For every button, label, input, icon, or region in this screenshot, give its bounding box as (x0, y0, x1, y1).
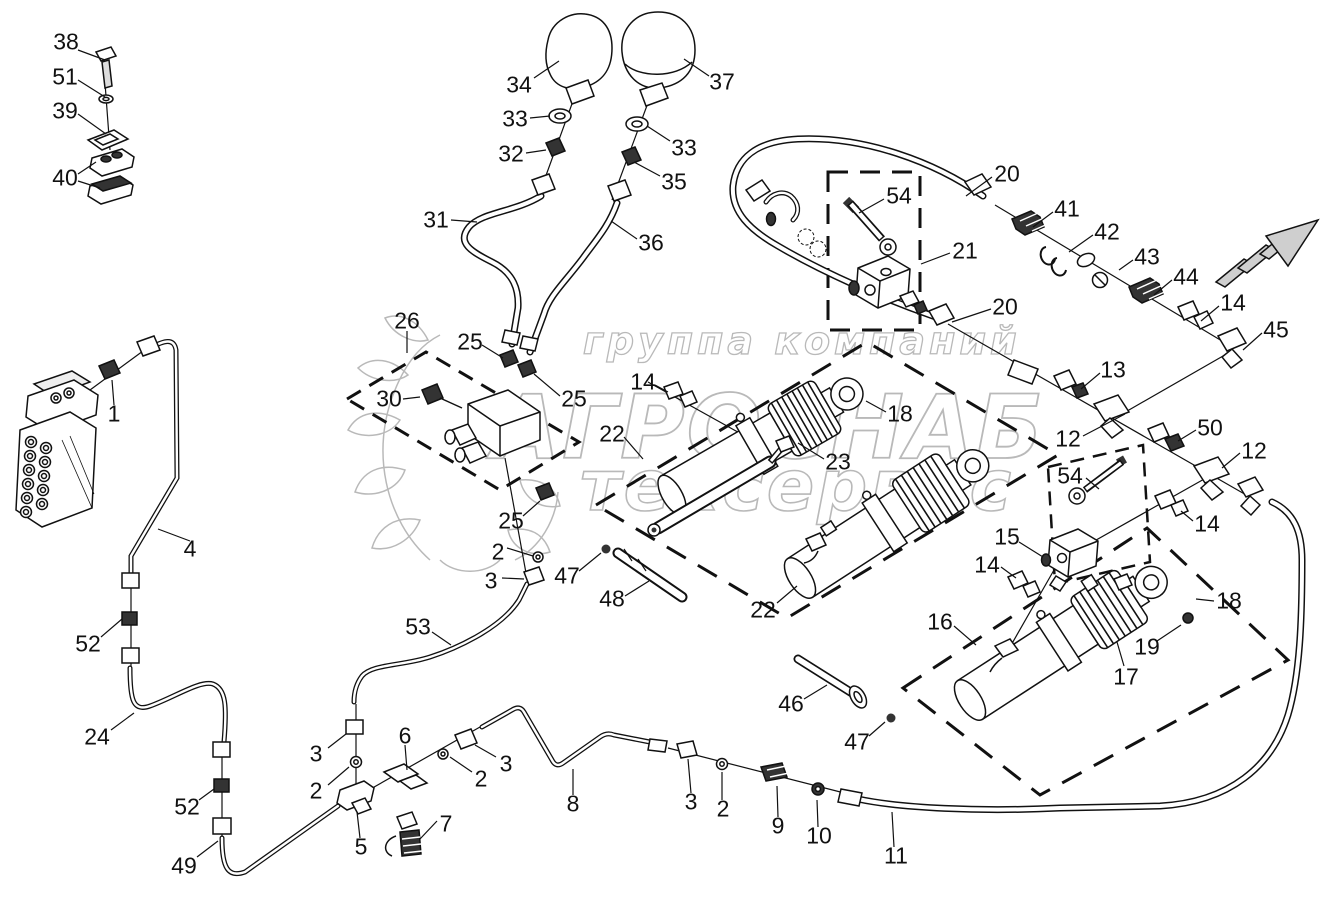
callout-52: 52 (75, 633, 101, 656)
callout-25: 25 (561, 388, 587, 411)
callout-43: 43 (1134, 246, 1160, 269)
callout-33: 33 (502, 108, 528, 131)
callout-30: 30 (376, 388, 402, 411)
callout-10: 10 (806, 825, 832, 848)
callout-21: 21 (952, 240, 978, 263)
callout-54: 54 (1057, 465, 1083, 488)
callout-3: 3 (310, 743, 323, 766)
callout-44: 44 (1173, 266, 1199, 289)
callout-33: 33 (671, 137, 697, 160)
callout-3: 3 (485, 570, 498, 593)
callout-46: 46 (778, 693, 804, 716)
callout-12: 12 (1055, 428, 1081, 451)
callout-17: 17 (1113, 666, 1139, 689)
callout-37: 37 (709, 71, 735, 94)
callout-23: 23 (825, 451, 851, 474)
callout-2: 2 (492, 541, 505, 564)
callout-41: 41 (1054, 198, 1080, 221)
callout-2: 2 (717, 798, 730, 821)
callout-49: 49 (171, 855, 197, 878)
callout-26: 26 (394, 310, 420, 333)
accumulator-34 (532, 14, 612, 195)
callout-3: 3 (685, 791, 698, 814)
callout-54: 54 (886, 185, 912, 208)
callout-14: 14 (974, 554, 1000, 577)
watermark-line1: группа компаний (583, 319, 1021, 363)
callout-36: 36 (638, 232, 664, 255)
callout-2: 2 (475, 768, 488, 791)
callout-14: 14 (630, 371, 656, 394)
callout-22: 22 (750, 599, 776, 622)
callout-40: 40 (52, 167, 78, 190)
callout-4: 4 (184, 538, 197, 561)
callout-16: 16 (927, 611, 953, 634)
rod-46 (798, 659, 896, 723)
callout-15: 15 (994, 526, 1020, 549)
callout-42: 42 (1094, 221, 1120, 244)
callout-13: 13 (1100, 359, 1126, 382)
callout-9: 9 (772, 815, 785, 838)
callout-31: 31 (423, 209, 449, 232)
exploded-parts-drawing: группа компаний АГРОСНАБ техсервис (0, 0, 1339, 901)
callout-35: 35 (661, 171, 687, 194)
callout-34: 34 (506, 74, 532, 97)
callout-20: 20 (994, 163, 1020, 186)
callout-22: 22 (599, 423, 625, 446)
direction-arrow-icon (1216, 220, 1318, 287)
hydraulic-manifold (16, 336, 160, 527)
callout-48: 48 (599, 588, 625, 611)
callout-38: 38 (53, 31, 79, 54)
callout-3: 3 (500, 753, 513, 776)
callout-14: 14 (1220, 292, 1246, 315)
group-box-lower-right (903, 528, 1288, 795)
callout-20: 20 (992, 296, 1018, 319)
callout-39: 39 (52, 100, 78, 123)
callout-14: 14 (1194, 513, 1220, 536)
callout-19: 19 (1134, 636, 1160, 659)
callout-18: 18 (1216, 590, 1242, 613)
callout-45: 45 (1263, 319, 1289, 342)
callout-11: 11 (884, 845, 908, 868)
callout-47: 47 (554, 565, 580, 588)
parts-diagram-page: группа компаний АГРОСНАБ техсервис (0, 0, 1339, 901)
callout-51: 51 (52, 66, 78, 89)
callout-24: 24 (84, 726, 110, 749)
callout-1: 1 (108, 403, 121, 426)
callout-47: 47 (844, 731, 870, 754)
callout-52: 52 (174, 796, 200, 819)
callout-50: 50 (1197, 417, 1223, 440)
callout-7: 7 (440, 813, 453, 836)
callout-5: 5 (355, 836, 368, 859)
callout-2: 2 (310, 780, 323, 803)
callout-12: 12 (1241, 440, 1267, 463)
callout-6: 6 (399, 725, 412, 748)
callout-53: 53 (405, 616, 431, 639)
callout-32: 32 (498, 143, 524, 166)
callout-8: 8 (567, 793, 580, 816)
callout-25: 25 (457, 331, 483, 354)
callout-25: 25 (498, 510, 524, 533)
callout-18: 18 (887, 403, 913, 426)
